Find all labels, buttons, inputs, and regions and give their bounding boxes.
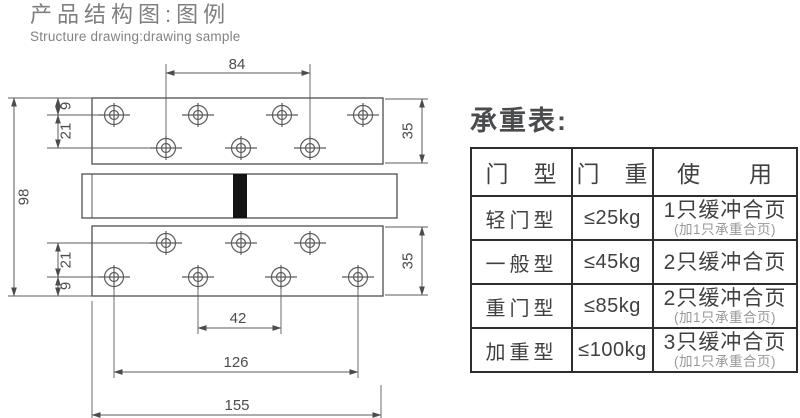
dim-label-9-bottom: 9: [58, 282, 75, 290]
door-weight-cell: ≤85kg: [572, 284, 653, 328]
load-table: 门 型 门 重 使 用 轻门型 ≤25kg 1只缓冲合页 (加1只承重合页) 一…: [470, 147, 798, 373]
usage-main: 1只缓冲合页: [654, 199, 796, 222]
usage-note: (加1只承重合页): [654, 310, 796, 325]
col-header-door-weight: 门 重: [572, 148, 653, 196]
top-hinge-leaf: [92, 98, 383, 164]
page: 产品结构图:图例 Structure drawing:drawing sampl…: [0, 0, 800, 418]
hinge-structure-drawing: 84 42 126 155 9 21 98 35 35 21 9: [0, 0, 460, 418]
door-weight-cell: ≤25kg: [572, 196, 653, 240]
load-table-section: 承重表: 门 型 门 重 使 用 轻门型 ≤25kg 1只缓冲合页 (加1只承重…: [470, 104, 800, 373]
screw-hole: [342, 265, 374, 289]
usage-cell: 1只缓冲合页 (加1只承重合页): [653, 196, 797, 240]
hinge-barrel: [82, 174, 397, 218]
dim-label-126: 126: [223, 354, 248, 371]
screw-hole: [182, 265, 214, 289]
table-row-heavy-door: 重门型 ≤85kg 2只缓冲合页 (加1只承重合页): [471, 284, 797, 328]
usage-note: (加1只承重合页): [654, 354, 796, 369]
door-type-cell: 加重型: [471, 328, 572, 372]
door-weight-cell: ≤45kg: [572, 240, 653, 284]
screw-hole: [98, 265, 130, 289]
load-table-title: 承重表:: [470, 104, 800, 138]
usage-main: 2只缓冲合页: [654, 287, 796, 310]
usage-cell: 2只缓冲合页 (加1只承重合页): [653, 284, 797, 328]
dim-label-35-bottom: 35: [400, 253, 417, 270]
dim-label-21-bottom: 21: [58, 252, 75, 269]
door-type-cell: 重门型: [471, 284, 572, 328]
dimension-labels: 84 42 126 155 9 21 98 35 35 21 9: [16, 56, 417, 414]
bottom-hinge-leaf: [92, 226, 383, 296]
top-leaf-holes: [98, 103, 379, 160]
dim-label-98: 98: [16, 189, 33, 206]
screw-hole: [225, 231, 257, 255]
screw-hole: [347, 103, 379, 127]
bottom-leaf-holes: [98, 231, 374, 289]
table-row-light-door: 轻门型 ≤25kg 1只缓冲合页 (加1只承重合页): [471, 196, 797, 240]
dim-label-42: 42: [230, 310, 247, 327]
usage-cell: 2只缓冲合页: [653, 240, 797, 284]
dim-label-84: 84: [229, 56, 246, 73]
dim-label-9-top: 9: [58, 102, 75, 110]
usage-main: 2只缓冲合页: [654, 251, 796, 274]
dim-label-21-top: 21: [58, 123, 75, 140]
table-row-extra-heavy: 加重型 ≤100kg 3只缓冲合页 (加1只承重合页): [471, 328, 797, 372]
screw-hole: [225, 136, 257, 160]
door-type-cell: 一般型: [471, 240, 572, 284]
screw-hole: [150, 231, 182, 255]
usage-cell: 3只缓冲合页 (加1只承重合页): [653, 328, 797, 372]
table-row-general: 一般型 ≤45kg 2只缓冲合页: [471, 240, 797, 284]
col-header-door-type: 门 型: [471, 148, 572, 196]
col-header-usage: 使 用: [653, 148, 797, 196]
dim-label-35-top: 35: [400, 123, 417, 140]
screw-hole: [266, 103, 298, 127]
screw-hole: [265, 265, 297, 289]
screw-hole: [294, 231, 326, 255]
usage-main: 3只缓冲合页: [654, 331, 796, 354]
barrel-pin: [233, 174, 247, 218]
table-header-row: 门 型 门 重 使 用: [471, 148, 797, 196]
screw-hole: [98, 103, 130, 127]
extension-lines: [8, 64, 428, 418]
dim-label-155: 155: [224, 397, 249, 414]
door-type-cell: 轻门型: [471, 196, 572, 240]
door-weight-cell: ≤100kg: [572, 328, 653, 372]
screw-hole: [182, 103, 214, 127]
usage-note: (加1只承重合页): [654, 222, 796, 237]
